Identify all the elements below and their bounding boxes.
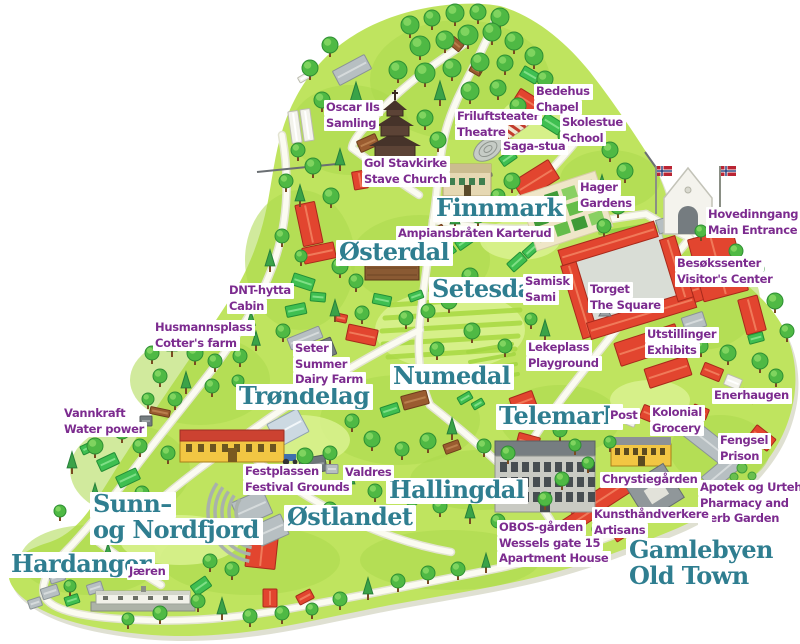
chrystiegarden-manor: [611, 437, 671, 466]
building: [140, 416, 152, 426]
building: [352, 170, 369, 190]
building: [310, 292, 326, 302]
tree-icon: [73, 419, 87, 437]
building: [326, 465, 338, 474]
museum-map: FinnmarkØsterdalSetesdalNumedalTrøndelag…: [0, 0, 800, 644]
tree-icon: [54, 505, 66, 521]
building: [263, 589, 277, 607]
main-entrance-gate: [656, 166, 736, 234]
conifer-tree-icon: [95, 408, 105, 430]
finnmark-house: [443, 164, 491, 196]
trondelag-farmhouse: [180, 430, 297, 465]
norwegian-flag-icon: [657, 166, 672, 176]
setesdal-loft: [365, 246, 419, 280]
building: [592, 416, 605, 424]
map-illustration: [0, 0, 800, 644]
norwegian-flag-icon: [721, 166, 736, 176]
